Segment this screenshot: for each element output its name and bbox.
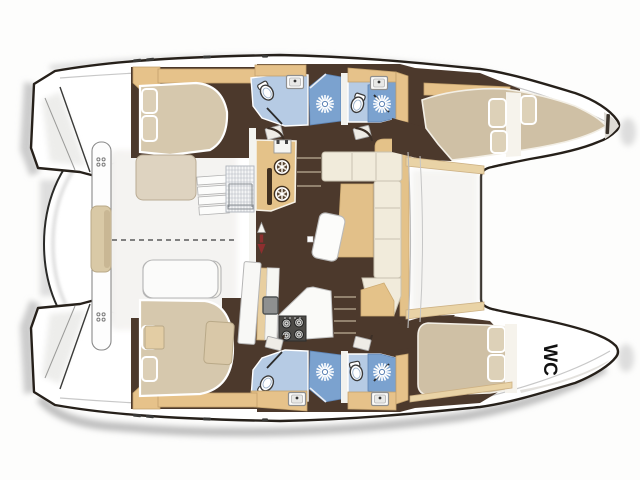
svg-text:WC: WC [539,344,560,376]
